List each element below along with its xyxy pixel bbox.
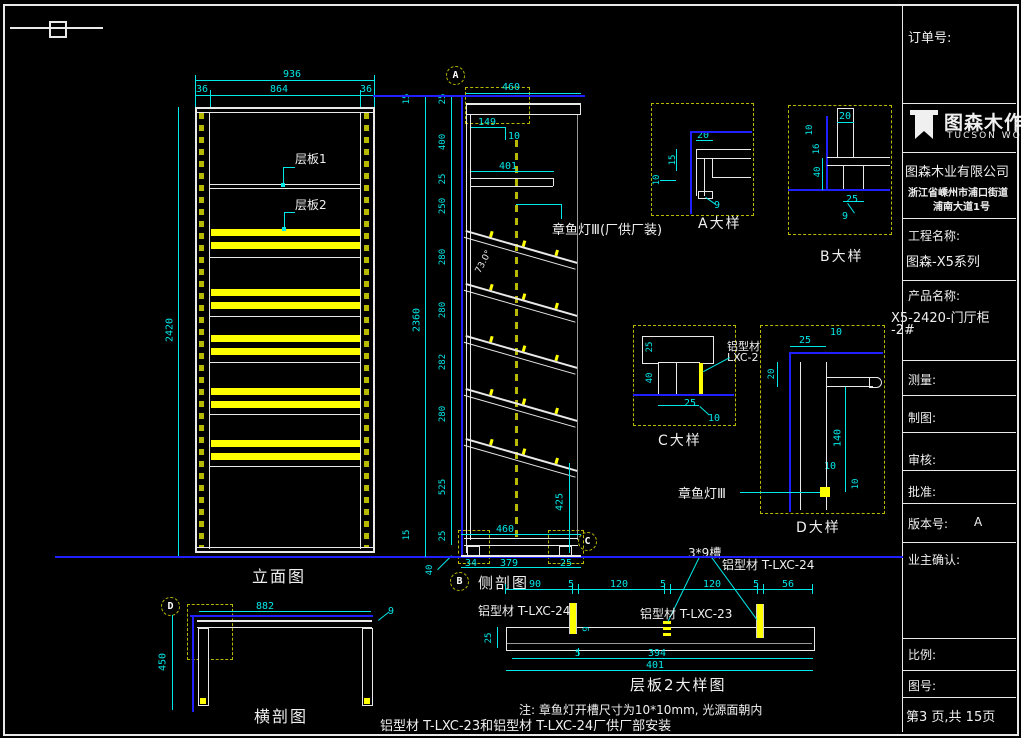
stroke	[788, 189, 890, 191]
detail-a-box	[651, 103, 754, 216]
stroke	[466, 93, 581, 94]
stroke	[210, 316, 360, 317]
owner-confirm-label: 业主确认:	[908, 551, 960, 568]
stroke	[845, 387, 846, 492]
stroke	[578, 584, 579, 594]
dim-elevation-right: 36	[360, 84, 372, 95]
stroke	[210, 414, 360, 415]
company-name: 图森木业有限公司	[905, 161, 1009, 180]
detail-callout-d: D	[161, 597, 180, 616]
company-address-1: 浙江省嵊州市浦口街道	[908, 184, 1008, 199]
note-line2: 铝型材 T-LXC-23和铝型材 T-LXC-24厂供厂部安装	[380, 715, 671, 734]
label-tlxc24-right: 铝型材 T-LXC-24	[722, 556, 814, 573]
version-value: A	[974, 515, 982, 529]
cross-left-post	[198, 628, 209, 706]
stroke	[826, 116, 828, 190]
stroke	[196, 112, 374, 113]
dim-side-chain: 525	[438, 479, 448, 495]
dim-d-10c: 10	[851, 479, 861, 490]
dim-elevation-left: 36	[196, 84, 208, 95]
project-name: 图森-X5系列	[906, 251, 980, 270]
label-c-material-code: LXC-2	[727, 351, 759, 364]
stroke	[902, 280, 1016, 281]
stroke	[902, 152, 1016, 153]
scale-label: 比例:	[908, 646, 936, 663]
stroke	[827, 157, 890, 158]
stroke	[577, 115, 578, 540]
stroke	[505, 589, 813, 590]
stroke	[561, 204, 562, 219]
dim-side-10: 10	[508, 131, 520, 142]
label-groove: 3*9槽	[688, 544, 721, 561]
stroke	[822, 158, 823, 190]
draft-label: 制图:	[908, 409, 936, 426]
stroke	[826, 386, 873, 387]
stroke	[853, 108, 854, 158]
company-address-2: 浦南大道1号	[933, 198, 990, 213]
stroke	[196, 547, 374, 548]
detail-b-box	[788, 105, 892, 235]
stroke	[466, 103, 581, 105]
stroke	[210, 257, 360, 258]
dim-elevation-height: 2420	[165, 318, 176, 342]
stroke	[902, 6, 903, 732]
dim-b-10: 10	[805, 125, 815, 136]
stroke	[763, 584, 764, 594]
dim-c-25: 25	[684, 398, 696, 409]
stroke	[190, 615, 373, 617]
dim-side-chain: 25	[438, 531, 448, 542]
stroke	[712, 177, 751, 178]
stroke	[837, 108, 854, 109]
dim-d-10a: 10	[830, 327, 842, 338]
stroke	[820, 487, 830, 497]
stroke	[704, 158, 705, 196]
stroke	[471, 171, 554, 172]
stroke	[195, 80, 375, 81]
stroke	[211, 388, 360, 395]
logo-subtitle: TUCSON WOOD	[947, 131, 1021, 141]
dim-side-chain: 282	[438, 354, 448, 370]
stroke	[210, 188, 360, 189]
stroke	[281, 183, 285, 187]
stroke	[211, 289, 360, 296]
stroke	[670, 584, 671, 594]
drawing-no-label: 图号:	[908, 677, 936, 694]
callout-b-letter: B	[456, 576, 462, 587]
stroke	[789, 352, 883, 354]
label-shelf2: 层板2	[295, 196, 327, 213]
dim-d-140: 140	[833, 429, 844, 447]
stroke	[373, 107, 375, 553]
stroke	[461, 534, 581, 535]
stroke	[197, 627, 372, 628]
stroke	[512, 658, 813, 659]
stroke	[284, 212, 295, 213]
stroke	[466, 114, 581, 115]
stroke	[197, 620, 372, 622]
stroke	[812, 584, 813, 594]
stroke	[195, 107, 375, 109]
stroke	[902, 542, 1016, 543]
stroke	[843, 201, 864, 202]
stroke	[863, 166, 864, 189]
stroke	[827, 165, 890, 166]
callout-a-letter: A	[452, 70, 458, 81]
stroke	[505, 127, 506, 140]
stroke	[464, 538, 578, 539]
dim-elevation-center: 864	[270, 84, 288, 95]
stroke	[210, 184, 360, 185]
stroke	[209, 112, 210, 549]
dim-c-25v: 25	[645, 342, 655, 353]
stroke	[461, 95, 463, 557]
approve-label: 批准:	[908, 483, 936, 500]
cross-section-title: 横剖图	[254, 703, 308, 727]
detail-callout-a: A	[446, 66, 465, 85]
stroke	[580, 103, 581, 115]
stroke	[471, 178, 553, 179]
elevation-title: 立面图	[252, 563, 306, 587]
dim-b-16: 16	[812, 144, 822, 155]
tucson-wood-logo-icon	[908, 108, 940, 142]
stroke	[464, 545, 578, 546]
stroke	[740, 492, 820, 493]
post-cap	[200, 698, 206, 704]
stroke	[466, 103, 467, 553]
stroke	[195, 107, 197, 553]
stroke	[902, 503, 1016, 504]
dim-side-chain: 400	[438, 134, 448, 150]
shelf2-mid-profile	[663, 621, 671, 638]
stroke	[902, 470, 1016, 471]
stroke	[497, 627, 498, 648]
detail-c-title: C大样	[658, 430, 702, 450]
stroke	[211, 348, 360, 355]
callout-c-letter: C	[584, 536, 590, 547]
stroke	[902, 395, 1016, 396]
dim-side-chain: 25	[438, 174, 448, 185]
stroke	[507, 643, 812, 644]
stroke	[699, 363, 703, 394]
callout-d-letter: D	[167, 601, 173, 612]
lamp-strip-hidden-line	[515, 140, 518, 538]
measure-label: 测量:	[908, 371, 936, 388]
stroke	[902, 360, 1016, 361]
stroke	[572, 584, 573, 594]
project-label: 工程名称:	[908, 227, 960, 244]
stroke	[471, 127, 505, 128]
stroke	[690, 131, 692, 214]
stroke	[505, 584, 506, 594]
dim-side-chain: 280	[438, 406, 448, 422]
elevation-left-post-strip	[199, 113, 204, 548]
stroke	[506, 670, 813, 671]
product-label: 产品名称:	[908, 287, 960, 304]
dim-side-15-bottom: 15	[402, 530, 412, 541]
stroke	[195, 95, 375, 96]
stroke	[360, 90, 361, 107]
stroke	[800, 362, 801, 510]
stroke	[789, 352, 791, 512]
stroke	[211, 302, 360, 309]
stroke	[211, 242, 360, 249]
post-cap	[364, 698, 370, 704]
stroke	[373, 95, 585, 97]
stroke	[633, 394, 734, 396]
stroke	[461, 555, 581, 557]
stroke	[195, 75, 196, 107]
dim-c-10: 10	[708, 413, 720, 424]
label-tlxc24-left: 铝型材 T-LXC-24	[478, 602, 570, 619]
stroke	[696, 149, 751, 150]
stroke	[471, 186, 553, 187]
detail-d-title: D大样	[796, 517, 841, 537]
stroke	[902, 432, 1016, 433]
stroke	[696, 140, 713, 141]
stroke	[10, 27, 103, 29]
stroke	[837, 122, 854, 123]
stroke	[902, 218, 1016, 219]
dim-side-425: 425	[555, 493, 566, 511]
order-number-label: 订单号:	[908, 27, 951, 46]
version-label: 版本号:	[908, 515, 948, 532]
detail-c-lower-profile	[658, 362, 700, 396]
label-tlxc23-mid: 铝型材 T-LXC-23	[640, 605, 732, 622]
stroke	[199, 611, 371, 612]
detail-callout-b: B	[450, 572, 469, 591]
stroke	[195, 551, 375, 553]
stroke	[211, 335, 360, 342]
stroke	[843, 166, 844, 189]
dim-elevation-total-width: 936	[283, 69, 301, 80]
dim-side-chain: 250	[438, 198, 448, 214]
label-d-octopus-lamp: 章鱼灯Ⅲ	[678, 483, 726, 502]
elevation-right-post-strip	[364, 113, 369, 548]
stroke	[451, 97, 452, 545]
stroke	[516, 204, 562, 205]
stroke	[210, 466, 360, 467]
stroke	[837, 108, 838, 158]
stroke	[826, 377, 878, 378]
dim-side-chain: 280	[438, 302, 448, 318]
stroke	[425, 97, 426, 557]
dim-side-top: 460	[502, 82, 520, 93]
dim-d-25: 25	[799, 335, 811, 346]
stroke	[210, 90, 211, 107]
stroke	[178, 107, 179, 557]
dim-side-2360: 2360	[412, 308, 423, 332]
page-info: 第3 页,共 15页	[906, 706, 995, 725]
break-symbol-icon	[49, 21, 67, 38]
dim-side-chain: 280	[438, 249, 448, 265]
stroke	[569, 463, 570, 553]
stroke	[172, 615, 173, 710]
stroke	[676, 149, 677, 171]
shelf2-right-profile	[756, 604, 764, 638]
dim-b-20: 20	[839, 111, 851, 122]
dim-cross-height: 450	[158, 653, 169, 671]
cad-canvas: 936 36 864 36 2420 层板1 层板2 立面图 A B C 460…	[0, 0, 1021, 738]
stroke	[676, 362, 677, 394]
label-shelf1: 层板1	[295, 150, 327, 167]
stroke	[553, 178, 554, 186]
dim-shelf2-25: 25	[484, 633, 494, 644]
dim-d-20: 20	[767, 369, 777, 380]
dim-shelf2-9: 9	[582, 626, 592, 631]
stroke	[902, 638, 1016, 639]
label-octopus-lamp: 章鱼灯Ⅲ(厂供厂装)	[552, 219, 662, 238]
stroke	[696, 149, 697, 196]
stroke	[902, 103, 1016, 104]
stroke	[360, 112, 361, 549]
stroke	[757, 584, 758, 594]
stroke	[690, 131, 752, 133]
stroke	[664, 584, 665, 594]
stroke	[660, 180, 676, 181]
dim-b-9: 9	[842, 211, 848, 222]
detail-b-title: B大样	[820, 246, 864, 266]
stroke	[211, 453, 360, 460]
dim-a-9: 9	[714, 200, 720, 211]
dim-c-40: 40	[645, 373, 655, 384]
detail-a-title: A大样	[698, 213, 742, 233]
stroke	[790, 346, 826, 347]
stroke	[192, 615, 194, 712]
stroke	[210, 362, 360, 363]
cross-right-post	[362, 628, 373, 706]
dim-side-40: 40	[425, 565, 435, 576]
stroke	[578, 648, 579, 656]
stroke	[283, 167, 295, 168]
stroke	[712, 158, 713, 178]
stroke	[777, 362, 778, 387]
stroke	[658, 405, 699, 406]
stroke	[902, 670, 1016, 671]
review-label: 审核:	[908, 451, 936, 468]
stroke	[211, 401, 360, 408]
stroke	[282, 227, 286, 231]
shelf2-detail-title: 层板2大样图	[630, 674, 727, 695]
stroke	[374, 75, 375, 107]
stroke	[461, 567, 581, 568]
stroke	[211, 440, 360, 447]
stroke	[902, 697, 1016, 698]
